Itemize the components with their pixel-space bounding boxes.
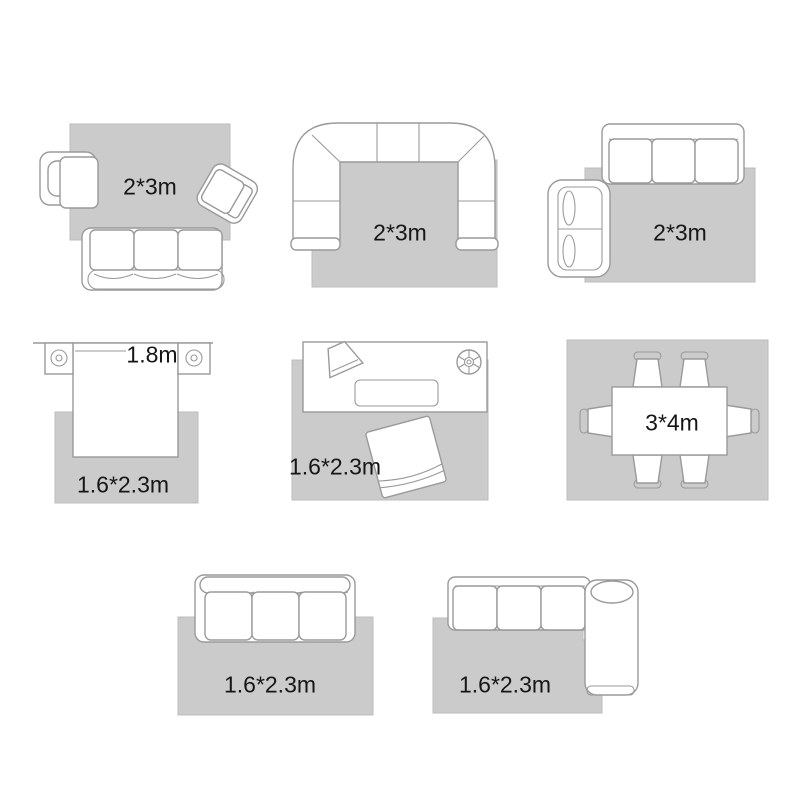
rug-size-label: 1.6*2.3m xyxy=(224,674,316,697)
sofa-loveseat-illustration xyxy=(543,108,760,293)
sofa-armchairs-illustration xyxy=(30,108,260,298)
sofa-3seat-icon xyxy=(82,228,224,290)
layout-bed: 1.8m 1.6*2.3m xyxy=(28,328,233,513)
sofa-3seat-icon xyxy=(195,575,355,642)
layout-u-sectional: 2*3m xyxy=(288,108,510,293)
armchair-left-icon xyxy=(40,152,98,208)
rug-size-label: 2*3m xyxy=(653,222,707,245)
layout-sofa-loveseat: 2*3m xyxy=(543,108,760,293)
rug-1.6x2.3-notched xyxy=(433,618,602,713)
chaise-lounge-icon xyxy=(585,580,638,695)
sofa-3seat-icon xyxy=(602,124,744,184)
chaise-sectional-illustration xyxy=(423,563,645,723)
console-cushion-illustration xyxy=(283,328,503,508)
layout-sofa-armchairs: 2*3m xyxy=(30,108,260,298)
layout-chaise-sectional: 1.6*2.3m xyxy=(423,563,645,723)
rug-size-label: 3*4m xyxy=(645,412,699,435)
rug-size-label: 1.6*2.3m xyxy=(459,674,551,697)
u-sectional-illustration xyxy=(288,108,510,293)
sofa-illustration xyxy=(168,563,380,723)
rug-size-label: 2*3m xyxy=(123,176,177,199)
chair-bottom-left-icon xyxy=(633,455,662,488)
rug-size-label: 1.6*2.3m xyxy=(77,474,169,497)
rug-size-label: 1.6*2.3m xyxy=(289,456,381,479)
nightstand-left-icon xyxy=(45,343,73,374)
rug-size-label: 2*3m xyxy=(373,222,427,245)
layout-dining: 3*4m xyxy=(558,328,783,508)
plant-icon xyxy=(457,350,481,374)
chair-bottom-right-icon xyxy=(680,455,709,488)
sofa-3seat-icon xyxy=(448,577,590,630)
bed-width-label: 1.8m xyxy=(126,344,177,367)
rug-size-guide: 2*3m 2*3m xyxy=(0,0,800,800)
nightstand-right-icon xyxy=(178,343,210,374)
layout-sofa: 1.6*2.3m xyxy=(168,563,380,723)
layout-console-cushion: 1.6*2.3m xyxy=(283,328,503,508)
loveseat-icon xyxy=(548,180,610,277)
